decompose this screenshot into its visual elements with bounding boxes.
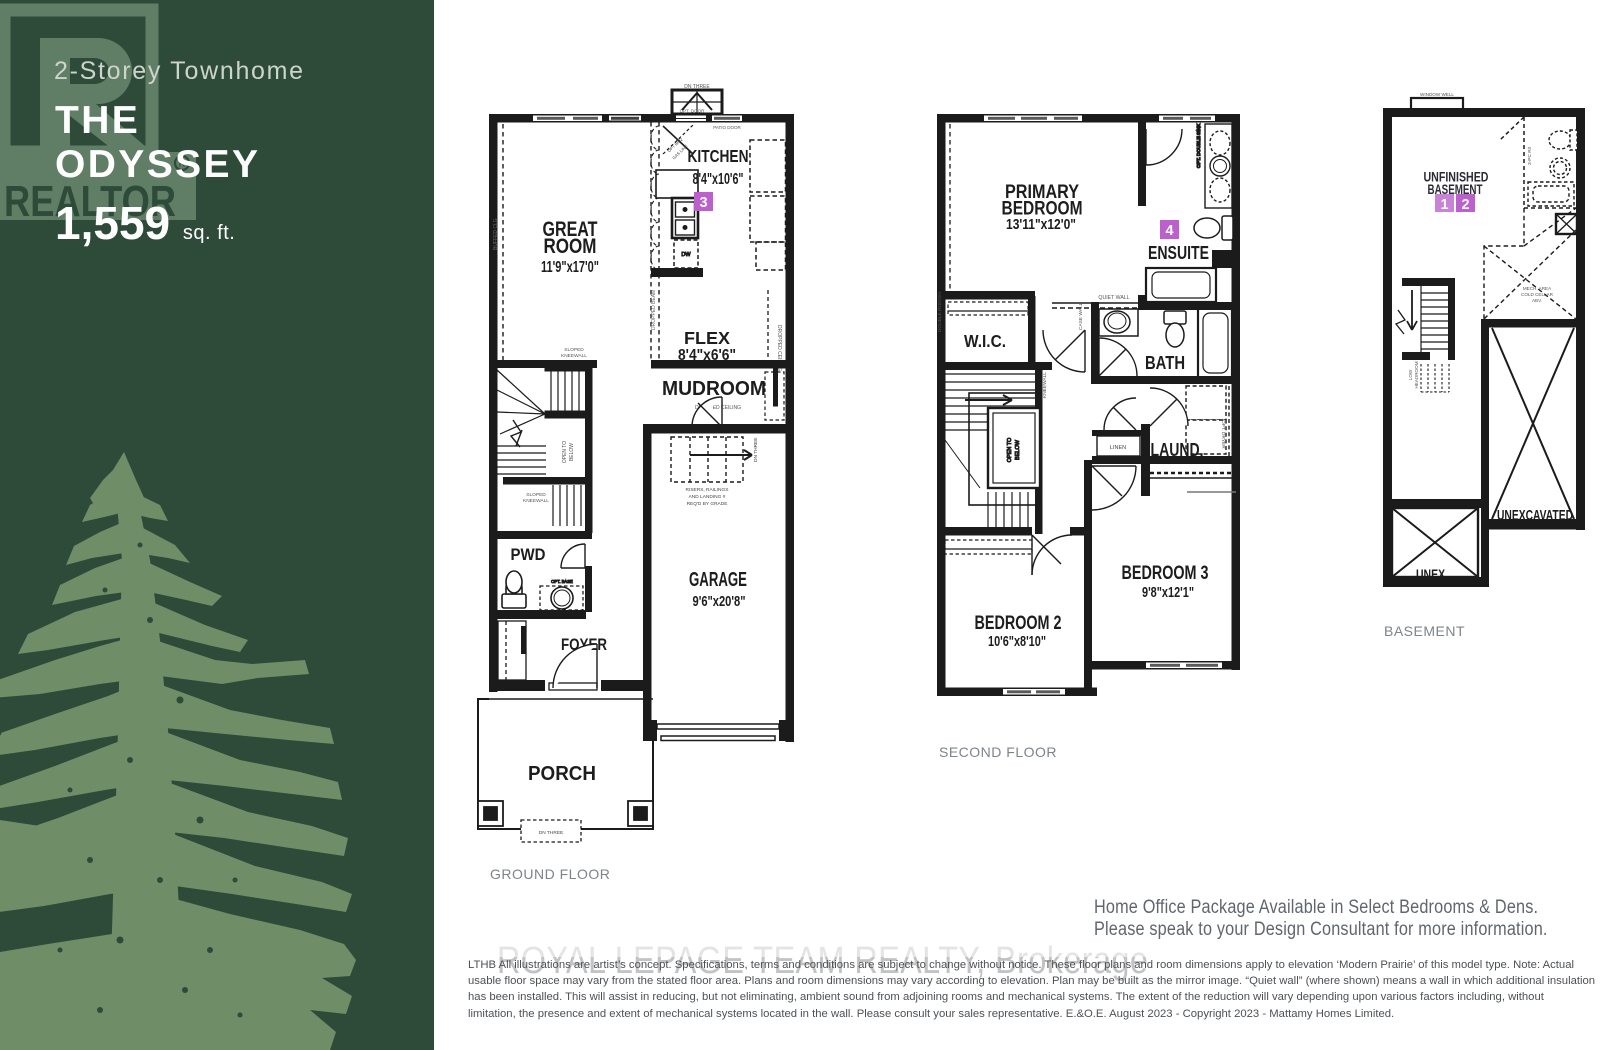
svg-text:CASE WALL: CASE WALL <box>1078 302 1084 330</box>
svg-text:4: 4 <box>1165 223 1173 239</box>
svg-text:SLOPED: SLOPED <box>526 492 546 498</box>
svg-text:DN THREE: DN THREE <box>753 438 759 462</box>
svg-text:MUDROOM: MUDROOM <box>662 378 766 400</box>
svg-text:ABV.: ABV. <box>1532 298 1542 303</box>
svg-text:LINEN: LINEN <box>1110 445 1126 451</box>
svg-text:11'9"x17'0": 11'9"x17'0" <box>541 259 599 276</box>
svg-text:OPT. DOUBLE SINK: OPT. DOUBLE SINK <box>1196 123 1202 168</box>
svg-text:2: 2 <box>1461 197 1469 213</box>
svg-text:8'4"x10'6": 8'4"x10'6" <box>693 171 744 188</box>
svg-text:DW: DW <box>681 252 691 258</box>
svg-text:9'8"x12'1": 9'8"x12'1" <box>1142 585 1194 601</box>
svg-text:DROPPED BEAM: DROPPED BEAM <box>651 290 657 330</box>
svg-text:SLOPED: SLOPED <box>564 347 584 353</box>
svg-text:DN THREE: DN THREE <box>539 830 563 836</box>
svg-text:10'6"x8'10": 10'6"x8'10" <box>988 634 1046 650</box>
svg-text:BELOW: BELOW <box>569 443 575 461</box>
svg-text:QUIET WALL: QUIET WALL <box>1098 295 1129 301</box>
svg-text:REQ'D BY GRADE: REQ'D BY GRADE <box>687 501 728 507</box>
svg-text:3-PC R/I: 3-PC R/I <box>1527 147 1533 165</box>
svg-text:PORCH: PORCH <box>528 763 596 785</box>
svg-text:9'6"x20'8": 9'6"x20'8" <box>693 593 746 610</box>
svg-text:AND LANDING #: AND LANDING # <box>689 494 726 500</box>
svg-text:ROOM: ROOM <box>544 235 597 258</box>
svg-text:W.I.C.: W.I.C. <box>964 331 1006 351</box>
svg-text:DOUBLE ROD/SH.: DOUBLE ROD/SH. <box>937 291 943 332</box>
svg-text:OPEN TO: OPEN TO <box>562 441 568 463</box>
svg-text:KNEEWALL: KNEEWALL <box>523 498 549 504</box>
svg-text:OPT. DRYER: OPT. DRYER <box>1220 420 1226 449</box>
svg-text:PATIO DOOR: PATIO DOOR <box>713 125 741 130</box>
svg-text:ENSUITE: ENSUITE <box>1148 243 1209 263</box>
svg-text:MECH. AREA: MECH. AREA <box>1523 286 1552 291</box>
svg-text:KNEEWALL: KNEEWALL <box>1042 372 1048 398</box>
svg-text:RISERS, RAILINGS: RISERS, RAILINGS <box>686 487 729 493</box>
svg-text:BEDROOM 3: BEDROOM 3 <box>1122 563 1209 584</box>
svg-text:OPT. DOOR: OPT. DOOR <box>680 109 706 114</box>
svg-text:DN THREE: DN THREE <box>684 84 710 90</box>
svg-text:BUFFED CLG: BUFFED CLG <box>493 218 499 250</box>
svg-text:13'11"x12'0": 13'11"x12'0" <box>1006 217 1076 233</box>
svg-text:OPT. BASE: OPT. BASE <box>551 579 573 584</box>
svg-text:BEDROOM 2: BEDROOM 2 <box>975 613 1062 634</box>
svg-text:HEADROOM: HEADROOM <box>1414 361 1419 388</box>
svg-text:GARAGE: GARAGE <box>689 569 747 591</box>
svg-text:1: 1 <box>1440 197 1448 213</box>
svg-text:KITCHEN: KITCHEN <box>688 146 749 166</box>
svg-text:FLEX: FLEX <box>684 328 730 348</box>
svg-text:KNEEWALL: KNEEWALL <box>561 353 587 359</box>
svg-text:COLD CELLAR: COLD CELLAR <box>1521 292 1554 297</box>
svg-text:OPEN TO: OPEN TO <box>1007 437 1013 462</box>
svg-text:BATH: BATH <box>1145 353 1185 373</box>
svg-text:3: 3 <box>699 195 707 211</box>
svg-text:PWD: PWD <box>511 545 546 564</box>
svg-text:LOW: LOW <box>1408 369 1413 380</box>
svg-text:BELOW: BELOW <box>1015 439 1021 460</box>
svg-text:WINDOW WELL: WINDOW WELL <box>1420 92 1454 97</box>
